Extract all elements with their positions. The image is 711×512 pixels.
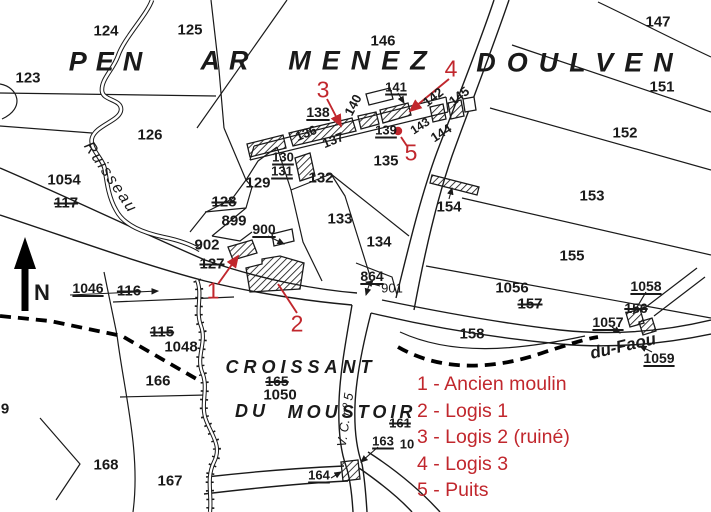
building-163 bbox=[341, 460, 360, 481]
cadastral-map: PENARMENEZDOULVEN12312412512614614715115… bbox=[0, 0, 711, 512]
north-arrow-head bbox=[14, 237, 36, 269]
legend-item: 2 - Logis 1 bbox=[417, 398, 570, 425]
north-arrow-shaft bbox=[22, 269, 29, 311]
building-1057-b bbox=[639, 318, 656, 335]
legend-item: 5 - Puits bbox=[417, 477, 570, 504]
legend: 1 - Ancien moulin2 - Logis 13 - Logis 2 … bbox=[417, 371, 570, 504]
building-hamlet-c bbox=[358, 112, 379, 129]
stream-upper-casing bbox=[92, 0, 200, 250]
stream bbox=[92, 0, 217, 512]
building-hamlet-f bbox=[430, 104, 446, 122]
building-logis1 bbox=[246, 256, 304, 292]
building-outline-h bbox=[463, 97, 476, 112]
building-hamlet-g bbox=[448, 100, 464, 119]
building-strip-154 bbox=[430, 175, 479, 195]
legend-item: 4 - Logis 3 bbox=[417, 451, 570, 478]
building-outline-141 bbox=[366, 88, 393, 105]
annotation-line-5 bbox=[401, 137, 407, 146]
annotation-dot-puits bbox=[394, 127, 402, 135]
building-hamlet-a bbox=[247, 135, 286, 157]
building-ancien-moulin bbox=[228, 240, 257, 260]
legend-item: 1 - Ancien moulin bbox=[417, 371, 570, 398]
building-130-131 bbox=[295, 153, 315, 181]
building-logis2-ruine bbox=[289, 118, 356, 146]
legend-item: 3 - Logis 2 (ruiné) bbox=[417, 424, 570, 451]
map-linework bbox=[0, 0, 711, 512]
building-logis3 bbox=[380, 103, 411, 123]
north-arrow bbox=[14, 237, 36, 311]
